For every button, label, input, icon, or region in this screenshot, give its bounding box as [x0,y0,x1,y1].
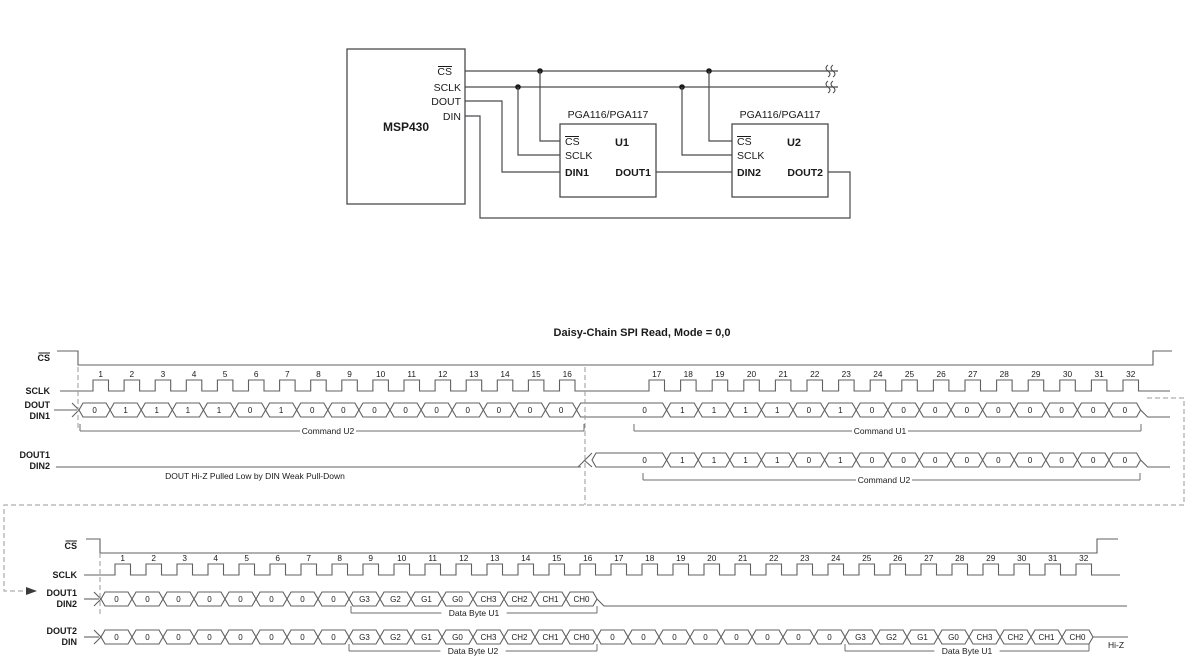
bit-value: 0 [114,633,119,642]
clock-number: 13 [469,369,479,379]
bit-value: 0 [996,406,1001,415]
clock-number: 30 [1017,553,1027,563]
bit-value: 0 [1028,456,1033,465]
bit-value: 0 [269,633,274,642]
clock-number: 3 [161,369,166,379]
bit-value: 1 [775,406,780,415]
bit-value: 0 [870,456,875,465]
tail-line [597,599,1127,606]
bit-value: 1 [155,406,160,415]
clock-number: 27 [924,553,934,563]
bit-value: 0 [901,456,906,465]
annotation-label: Data Byte U2 [448,646,499,656]
clock-number: 20 [707,553,717,563]
pga-pin-din: DIN2 [737,167,761,179]
signal-name: SCLK [53,570,78,580]
clock-number: 19 [676,553,686,563]
annotation-label: Command U2 [302,426,355,436]
pga-part-label: PGA116/PGA117 [568,109,649,121]
clock-number: 16 [563,369,573,379]
bit-value: 0 [610,633,615,642]
clock-number: 21 [778,369,788,379]
bit-value: 1 [838,406,843,415]
bit-value: 0 [1123,456,1128,465]
bit-value: G2 [886,633,897,642]
clock-number: 19 [715,369,725,379]
bit-value: 0 [372,406,377,415]
bit-value: CH1 [1038,633,1055,642]
clock-number: 6 [275,553,280,563]
clock-number: 7 [285,369,290,379]
clock-number: 13 [490,553,500,563]
bit-value: 0 [559,406,564,415]
clock-number: 16 [583,553,593,563]
annotation-label: Command U1 [854,426,907,436]
clock-number: 15 [531,369,541,379]
clock-number: 5 [223,369,228,379]
signal-name: CS [37,353,50,363]
bit-value: G0 [452,595,463,604]
pga-pin-dout: DOUT1 [615,167,651,179]
bit-value: G0 [452,633,463,642]
bit-value: 0 [796,633,801,642]
signal-name: DOUT1 [46,588,77,598]
bit-value: 0 [176,633,181,642]
bit-value: G3 [359,633,370,642]
bit-value: 0 [310,406,315,415]
tail-line [1141,460,1170,467]
bit-value: 0 [807,456,812,465]
bit-value: 1 [838,456,843,465]
bit-value: 0 [672,633,677,642]
bit-value: 0 [114,595,119,604]
clock-number: 18 [684,369,694,379]
bit-value: 0 [269,595,274,604]
clock-number: 3 [182,553,187,563]
bit-value: 0 [642,406,647,415]
clock-number: 11 [407,369,416,379]
pga-part-label: PGA116/PGA117 [740,109,821,121]
clock-number: 10 [397,553,407,563]
bit-value: 1 [186,406,191,415]
bit-value: 0 [765,633,770,642]
signal-name: CS [64,541,77,551]
bit-value: 0 [238,633,243,642]
clock-number: 9 [347,369,352,379]
hiz-note: DOUT Hi-Z Pulled Low by DIN Weak Pull-Do… [165,471,345,481]
clock-number: 12 [438,369,448,379]
bit-value: CH3 [480,595,497,604]
bit-value: 0 [1091,456,1096,465]
signal-name: DOUT1 [19,450,50,460]
hiz-label: Hi-Z [1108,640,1124,650]
pga-pin-cs: CS [565,136,580,148]
signal-name: DIN [62,637,78,647]
timing-diagram-title: Daisy-Chain SPI Read, Mode = 0,0 [554,327,731,339]
bit-value: CH0 [573,595,590,604]
lead-wedge [94,637,101,644]
bit-value: 0 [248,406,253,415]
bit-value: 1 [712,406,717,415]
clock-number: 6 [254,369,259,379]
wire [540,71,560,141]
signal-name: SCLK [26,386,51,396]
bit-value: 0 [145,633,150,642]
pga-ref-label: U1 [615,137,629,149]
bit-value: CH2 [511,595,528,604]
bit-value: 0 [341,406,346,415]
bit-value: 0 [238,595,243,604]
pga-pin-sclk: SCLK [565,150,592,162]
bit-value: 0 [827,633,832,642]
clock-number: 4 [213,553,218,563]
bit-value: 1 [680,456,685,465]
bit-value: 0 [207,595,212,604]
bit-value: 0 [434,406,439,415]
bit-value: 0 [1123,406,1128,415]
clock-number: 28 [955,553,965,563]
clock-number: 11 [428,553,437,563]
mcu-pin-din: DIN [443,111,461,123]
signal-name: DOUT [25,400,51,410]
clock-number: 17 [652,369,662,379]
bit-value: 1 [775,456,780,465]
wire [682,87,732,155]
pga-pin-sclk: SCLK [737,150,764,162]
bit-value: 1 [743,456,748,465]
clock-number: 29 [1031,369,1041,379]
dashed-line [4,398,1184,591]
annotation-label: Command U2 [858,475,911,485]
clock-number: 30 [1063,369,1073,379]
lead-wedge [94,630,101,637]
clock-number: 1 [98,369,103,379]
annotation-label: Data Byte U1 [449,608,500,618]
clock-number: 20 [747,369,757,379]
clock-number: 12 [459,553,469,563]
clock-number: 1 [120,553,125,563]
clock-number: 8 [337,553,342,563]
bit-value: G1 [421,633,432,642]
data-cell [592,453,667,467]
clock-number: 25 [862,553,872,563]
bit-value: 0 [403,406,408,415]
wire [465,101,560,172]
pga-pin-cs: CS [737,136,752,148]
signal-name: DOUT2 [46,626,77,636]
wire [709,71,732,141]
clock-number: 23 [800,553,810,563]
bit-value: CH2 [511,633,528,642]
data-cell [577,403,667,417]
bit-value: 0 [300,595,305,604]
clock-number: 22 [769,553,779,563]
clock-number: 26 [893,553,903,563]
clock-number: 31 [1094,369,1104,379]
bit-value: 0 [933,456,938,465]
bit-value: G2 [390,633,401,642]
bit-value: 0 [331,633,336,642]
bit-value: 0 [92,406,97,415]
bit-value: G3 [855,633,866,642]
clock-number: 2 [129,369,134,379]
clock-number: 22 [810,369,820,379]
pga-pin-dout: DOUT2 [787,167,823,179]
tail-line [1141,410,1170,417]
bit-value: 0 [1059,456,1064,465]
cs-waveform [86,539,1118,553]
bit-value: CH0 [1069,633,1086,642]
bit-value: 0 [996,456,1001,465]
bit-value: G1 [421,595,432,604]
mcu-pin-dout: DOUT [431,96,461,108]
bit-value: 1 [680,406,685,415]
bit-value: 1 [712,456,717,465]
bit-value: 0 [331,595,336,604]
clock-number: 2 [151,553,156,563]
pga-pin-din: DIN1 [565,167,589,179]
clock-number: 28 [1000,369,1010,379]
bit-value: CH0 [573,633,590,642]
clock-number: 29 [986,553,996,563]
mcu-pin-cs: CS [437,66,452,78]
bit-value: 0 [1028,406,1033,415]
clock-number: 18 [645,553,655,563]
wire [518,87,560,155]
clock-number: 8 [316,369,321,379]
bit-value: 0 [933,406,938,415]
bit-value: 0 [965,406,970,415]
bit-value: G0 [948,633,959,642]
bit-value: CH1 [542,633,559,642]
bit-value: 0 [145,595,150,604]
bit-value: 0 [870,406,875,415]
bit-value: 0 [1091,406,1096,415]
clock-number: 32 [1079,553,1089,563]
datasheet-figure: MSP430CSSCLKDOUTDINPGA116/PGA117CSSCLKDI… [0,0,1188,660]
bit-value: 1 [123,406,128,415]
clock-number: 26 [936,369,946,379]
clock-number: 14 [521,553,531,563]
clock-number: 7 [306,553,311,563]
bit-value: 0 [497,406,502,415]
clock-number: 17 [614,553,624,563]
signal-name: DIN1 [29,411,50,421]
bit-value: 0 [466,406,471,415]
pga-ref-label: U2 [787,137,801,149]
bit-value: 1 [279,406,284,415]
cs-waveform [57,351,1172,365]
bit-value: 0 [642,456,647,465]
bit-value: 1 [743,406,748,415]
bit-value: CH3 [480,633,497,642]
clock-number: 23 [842,369,852,379]
clock-number: 24 [873,369,883,379]
bit-value: 0 [703,633,708,642]
sclk-waveform [84,564,1120,575]
clock-number: 31 [1048,553,1058,563]
bit-value: CH3 [976,633,993,642]
mcu-label: MSP430 [383,120,429,134]
mcu-pin-sclk: SCLK [434,82,461,94]
bit-value: 0 [300,633,305,642]
sclk-waveform [60,380,1170,391]
clock-number: 32 [1126,369,1136,379]
bit-value: 0 [1059,406,1064,415]
signal-name: DIN2 [56,599,77,609]
bit-value: 0 [528,406,533,415]
clock-number: 25 [905,369,915,379]
signal-name: DIN2 [29,461,50,471]
clock-number: 9 [368,553,373,563]
bit-value: 0 [641,633,646,642]
dashed-arrowhead [26,587,37,595]
clock-number: 5 [244,553,249,563]
bit-value: G2 [390,595,401,604]
annotation-label: Data Byte U1 [942,646,993,656]
clock-number: 24 [831,553,841,563]
bit-value: CH2 [1007,633,1024,642]
bit-value: 1 [217,406,222,415]
clock-number: 10 [376,369,386,379]
clock-number: 4 [192,369,197,379]
bit-value: 0 [807,406,812,415]
clock-number: 27 [968,369,978,379]
clock-number: 15 [552,553,562,563]
bit-value: G3 [359,595,370,604]
bit-value: 0 [965,456,970,465]
bit-value: CH1 [542,595,559,604]
clock-number: 14 [500,369,510,379]
bit-value: 0 [176,595,181,604]
bit-value: G1 [917,633,928,642]
bit-value: 0 [901,406,906,415]
clock-number: 21 [738,553,748,563]
bit-value: 0 [734,633,739,642]
bit-value: 0 [207,633,212,642]
